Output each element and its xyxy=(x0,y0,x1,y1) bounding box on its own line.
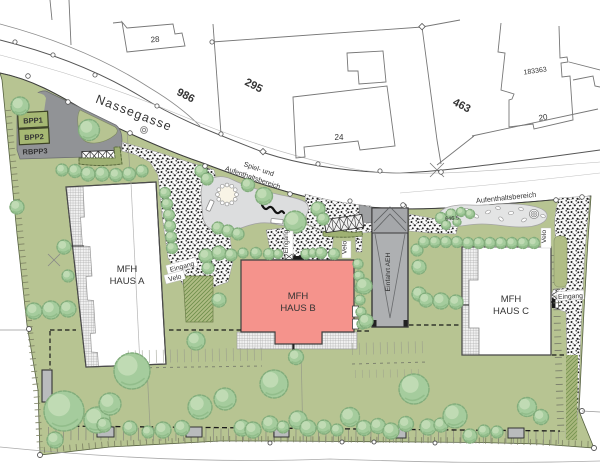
svg-text:MFH: MFH xyxy=(501,294,522,305)
svg-text:HAUS B: HAUS B xyxy=(280,303,315,314)
svg-text:HAUS C: HAUS C xyxy=(493,306,529,317)
svg-text:Eingang: Eingang xyxy=(283,229,290,253)
svg-text:BPP2: BPP2 xyxy=(24,132,44,142)
svg-text:RBPP3: RBPP3 xyxy=(22,146,47,156)
svg-text:MFH: MFH xyxy=(117,264,138,275)
svg-text:20: 20 xyxy=(538,112,549,122)
svg-text:646.5: 646.5 xyxy=(445,216,459,223)
svg-text:Velo: Velo xyxy=(541,230,548,243)
svg-text:24: 24 xyxy=(335,133,344,142)
svg-text:BPP1: BPP1 xyxy=(23,115,43,125)
svg-text:28: 28 xyxy=(150,35,160,45)
svg-text:Eingang: Eingang xyxy=(558,293,583,301)
svg-text:HAUS A: HAUS A xyxy=(110,276,146,287)
svg-text:Velo: Velo xyxy=(342,241,349,254)
svg-text:Einfahrt AEH: Einfahrt AEH xyxy=(385,252,392,291)
svg-text:MFH: MFH xyxy=(288,291,309,302)
